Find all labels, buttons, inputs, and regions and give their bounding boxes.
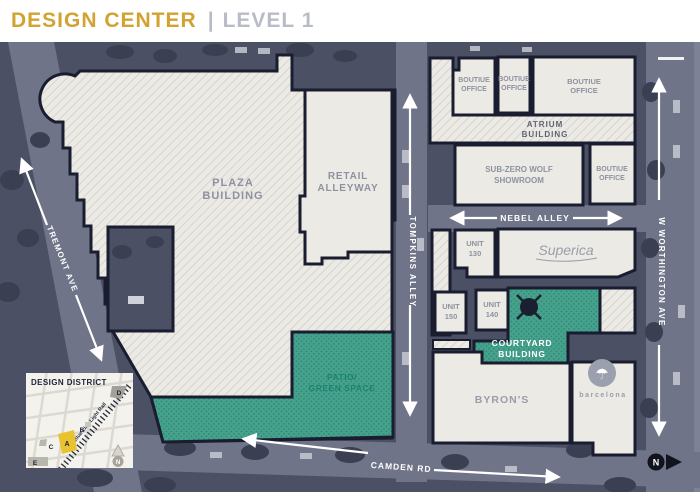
- page-header: DESIGN CENTER | LEVEL 1: [0, 0, 700, 42]
- plaza-label: PLAZA: [212, 177, 254, 189]
- unit-150-label2: 150: [445, 312, 458, 321]
- unit-150-label: UNIT: [442, 302, 460, 311]
- unit-130-label: UNIT: [466, 239, 484, 248]
- marker-a-label: A: [64, 441, 69, 448]
- subzero-wolf-shape: [455, 145, 583, 205]
- patio-label: PATIO/: [327, 372, 357, 382]
- subzero-label2: SHOWROOM: [494, 176, 544, 185]
- unit-140-label2: 140: [486, 310, 499, 319]
- crosswalk-mark: [658, 57, 684, 60]
- unit-130-label2: 130: [469, 249, 482, 258]
- nebel-alley-label: NEBEL ALLEY: [500, 213, 570, 223]
- barcelona-label: barcelona: [579, 392, 626, 399]
- umbrella-icon: ☂: [595, 366, 608, 383]
- boutique-office-4-shape: [590, 144, 635, 204]
- boutique-office-2-label: BOUTIUE: [498, 76, 530, 83]
- tree-icon: [517, 295, 541, 319]
- courtyard-east-hatch: [600, 288, 635, 333]
- marker-e-label: E: [33, 460, 38, 467]
- subzero-label: SUB-ZERO WOLF: [485, 165, 553, 174]
- courtyard-label: COURTYARD: [492, 338, 553, 348]
- boutique-office-2-label2: OFFICE: [501, 85, 527, 92]
- byrons-label: BYRON'S: [475, 394, 529, 406]
- site-plan-map: PLAZA BUILDING RETAIL ALLEYWAY BOUTIUE O…: [0, 42, 700, 492]
- tompkins-alley-label: TOMPKINS ALLEY: [408, 216, 417, 307]
- marker-c-shape: [39, 439, 47, 446]
- marker-b-shape: [85, 422, 91, 427]
- unit-140-label: UNIT: [483, 300, 501, 309]
- marker-e-shape: [28, 457, 48, 466]
- inset-north-label: N: [116, 460, 120, 466]
- marker-b-label: B: [80, 427, 85, 434]
- plaza-label2: BUILDING: [202, 190, 263, 202]
- boutique-office-1-label: BOUTIUE: [458, 77, 490, 84]
- compass-n-label: N: [653, 458, 660, 468]
- atrium-label2: BUILDING: [522, 130, 569, 139]
- courtyard-label2: BUILDING: [498, 349, 545, 359]
- patio-label2: GREEN SPACE: [309, 383, 376, 393]
- atrium-label: ATRIUM: [527, 120, 564, 129]
- worthington-ave-label: W WORTHINGTON AVE: [657, 217, 666, 326]
- retail-alleyway-label: RETAIL: [328, 171, 368, 182]
- boutique-office-3-label2: OFFICE: [570, 86, 598, 95]
- page-title: DESIGN CENTER: [11, 9, 197, 33]
- superica-logo-text: Superica: [538, 242, 593, 258]
- page-subtitle: LEVEL 1: [223, 9, 315, 33]
- boutique-office-4-label2: OFFICE: [599, 175, 625, 182]
- inset-title: DESIGN DISTRICT: [31, 378, 107, 387]
- marker-c-label: C: [49, 444, 54, 451]
- design-district-inset: Blue Line Light Rail DESIGN DISTRICT D B…: [20, 370, 140, 470]
- boutique-office-3-label: BOUTIUE: [567, 77, 601, 86]
- boutique-office-1-label2: OFFICE: [461, 86, 487, 93]
- boutique-office-4-label: BOUTIUE: [596, 166, 628, 173]
- design-center-map-page: DESIGN CENTER | LEVEL 1: [0, 0, 700, 498]
- retail-alleyway-label2: ALLEYWAY: [317, 183, 378, 194]
- byrons-top-hatch: [433, 340, 470, 349]
- marker-d-label: D: [117, 390, 122, 397]
- title-divider: |: [208, 9, 214, 33]
